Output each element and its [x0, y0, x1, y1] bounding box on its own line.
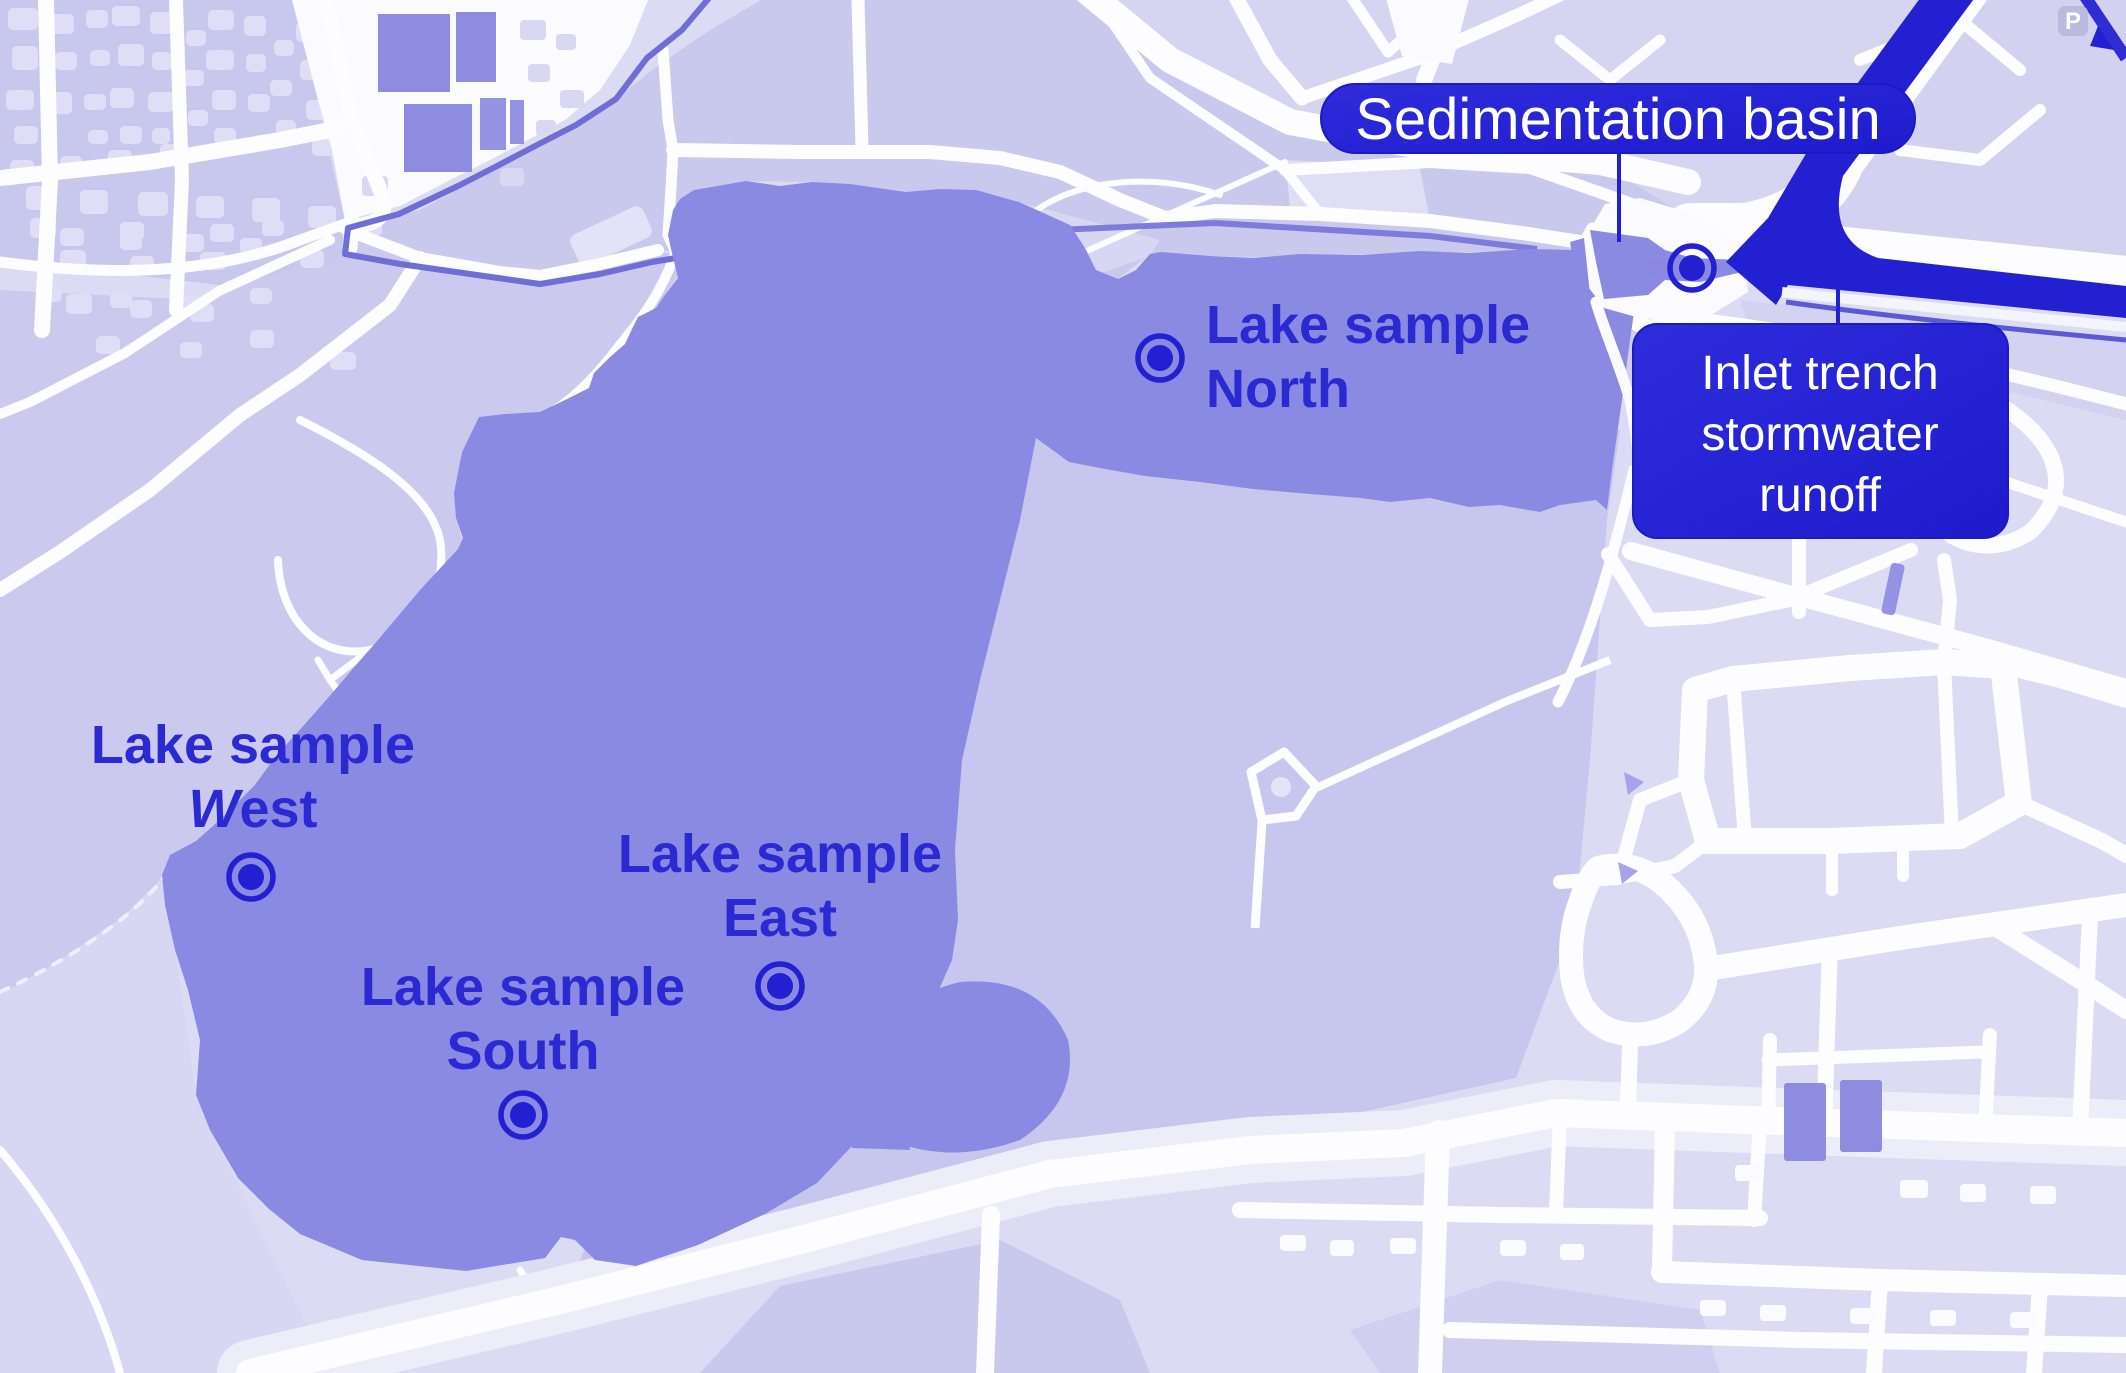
svg-text:Lake sample: Lake sample [1206, 295, 1530, 355]
svg-text:South: South [447, 1021, 600, 1081]
svg-text:East: East [723, 888, 837, 948]
svg-text:North: North [1206, 359, 1350, 419]
svg-text:Sedimentation basin: Sedimentation basin [1355, 87, 1881, 152]
svg-text:Lake sample: Lake sample [361, 957, 685, 1017]
svg-text:West: West [188, 779, 317, 839]
svg-text:P: P [2065, 8, 2081, 35]
svg-text:Lake sample: Lake sample [618, 824, 942, 884]
svg-text:Lake sample: Lake sample [91, 715, 415, 775]
svg-text:Inlet trench: Inlet trench [1701, 347, 1938, 400]
svg-text:stormwater: stormwater [1701, 408, 1938, 461]
svg-text:runoff: runoff [1759, 469, 1882, 522]
